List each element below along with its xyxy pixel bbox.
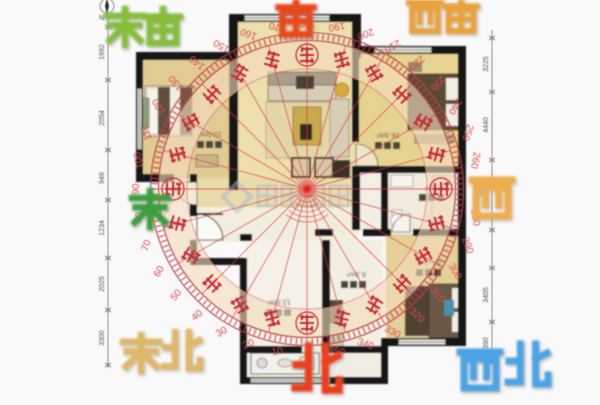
svg-text:4440: 4440 — [483, 117, 490, 133]
svg-text:2054: 2054 — [99, 110, 106, 126]
svg-text:3225: 3225 — [483, 56, 490, 72]
svg-text:3300: 3300 — [99, 330, 106, 346]
svg-text:1992: 1992 — [99, 44, 106, 60]
svg-text:18.3m²: 18.3m² — [376, 131, 400, 140]
svg-text:946: 946 — [99, 172, 106, 184]
svg-text:3405: 3405 — [483, 287, 490, 303]
svg-text:2025: 2025 — [99, 276, 106, 292]
svg-text:N: N — [99, 15, 104, 22]
svg-text:1234: 1234 — [99, 220, 106, 236]
svg-text:90: 90 — [131, 183, 142, 195]
